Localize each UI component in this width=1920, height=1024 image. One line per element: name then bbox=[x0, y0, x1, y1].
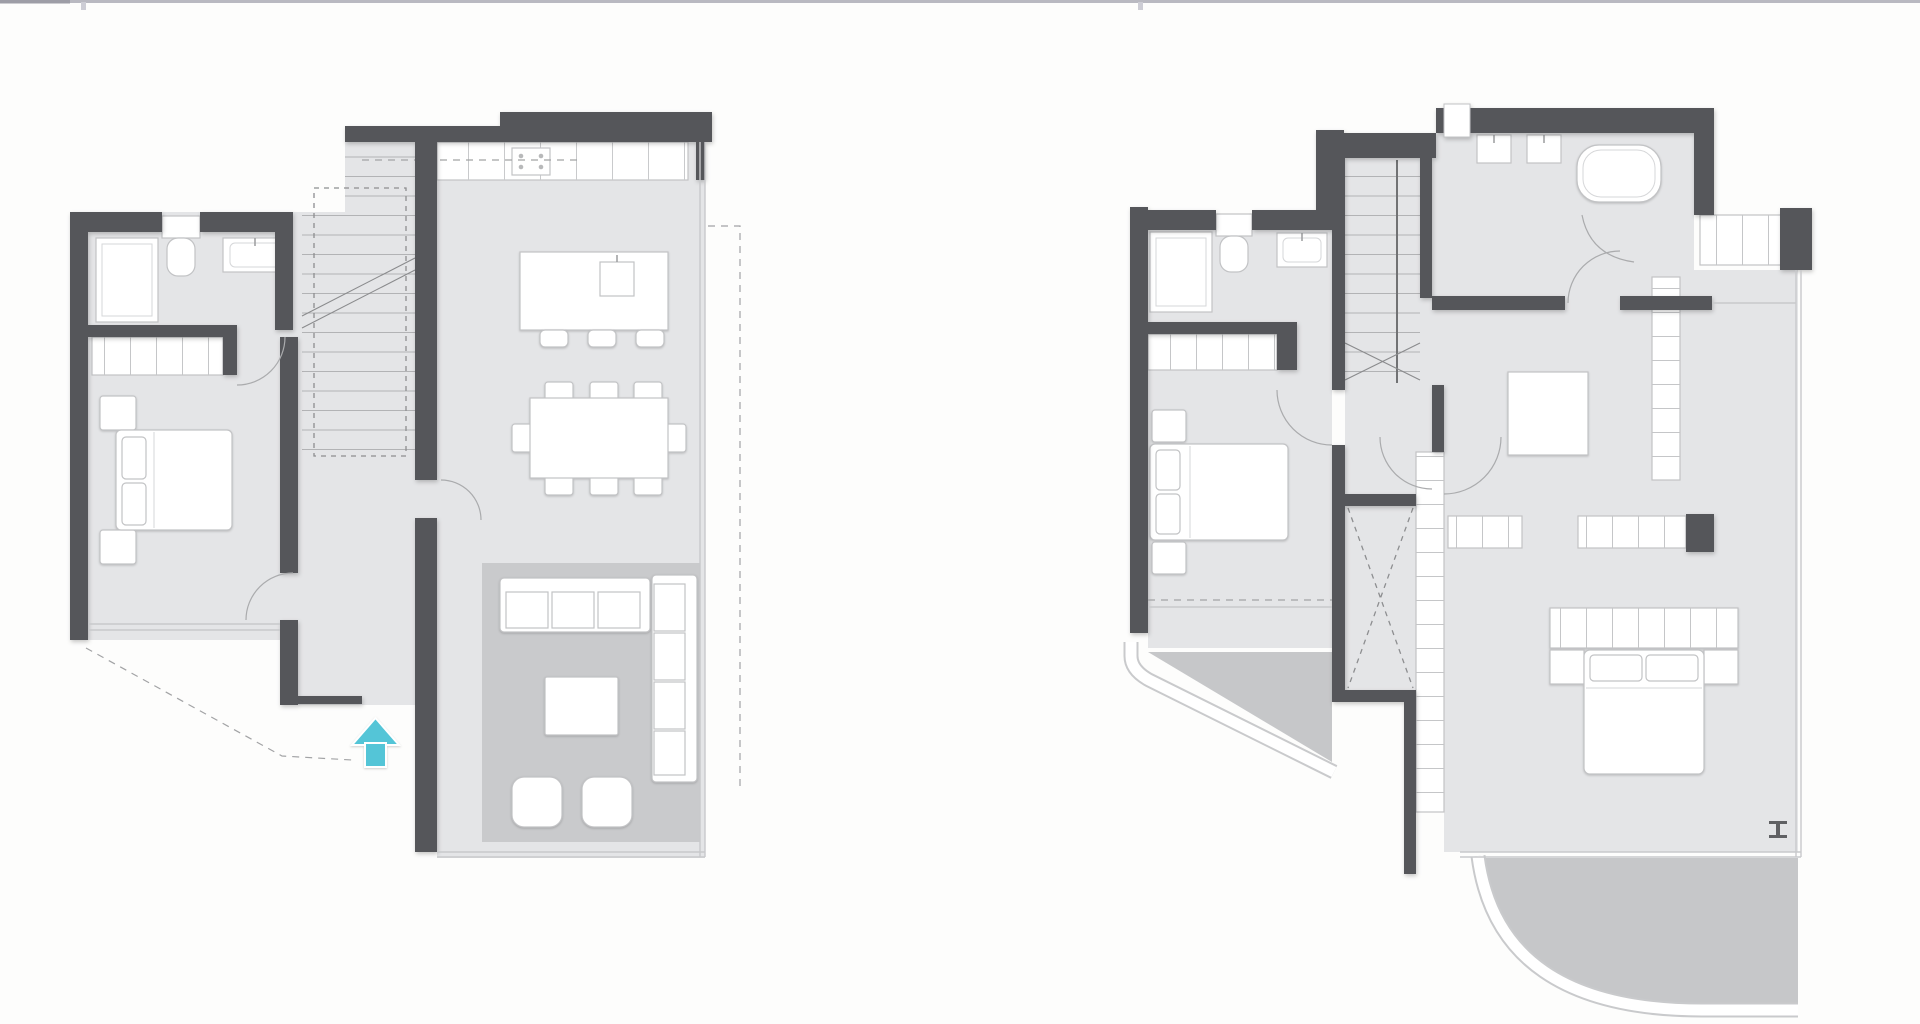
wall-segment bbox=[415, 518, 437, 852]
chaise-cushion bbox=[654, 731, 685, 775]
toilet-cistern bbox=[1216, 214, 1252, 236]
staircase bbox=[302, 150, 415, 465]
wall-segment bbox=[1686, 514, 1714, 552]
roof-overhang-dashed bbox=[708, 226, 740, 792]
nightstand bbox=[1550, 650, 1584, 684]
first-floor-plan bbox=[1130, 104, 1812, 1010]
wall-segment bbox=[1332, 133, 1345, 390]
wall-segment bbox=[1130, 210, 1216, 230]
wall-segment bbox=[1432, 385, 1444, 452]
dining-chair bbox=[666, 424, 686, 452]
top-border-line bbox=[0, 0, 1920, 3]
dining-chair bbox=[634, 476, 662, 495]
chaise-cushion bbox=[654, 682, 685, 729]
sofa-cushion bbox=[598, 592, 640, 628]
chaise-cushion bbox=[654, 633, 685, 680]
nightstand bbox=[100, 396, 136, 430]
wall-segment bbox=[88, 325, 237, 337]
wall-segment bbox=[280, 337, 298, 573]
page-top-border bbox=[0, 0, 1920, 10]
stair-treads-upper bbox=[345, 150, 415, 212]
headboard-divisions bbox=[1550, 608, 1738, 648]
toilet-bowl bbox=[1220, 236, 1248, 272]
wardrobe-divisions bbox=[92, 337, 223, 375]
pillow bbox=[1156, 450, 1180, 490]
wall-segment bbox=[1277, 322, 1297, 370]
stair-treads bbox=[1345, 158, 1420, 385]
coffee-table bbox=[545, 677, 618, 735]
wall-segment bbox=[1404, 702, 1416, 874]
wall-segment bbox=[1432, 296, 1565, 310]
floor-plan-sheet bbox=[0, 0, 1920, 1024]
pouf bbox=[512, 777, 562, 827]
toilet-bowl bbox=[167, 238, 195, 276]
top-border-tick bbox=[1138, 2, 1143, 10]
top-border-tick bbox=[81, 2, 86, 10]
wall-niche bbox=[1444, 104, 1470, 137]
wall-segment bbox=[1694, 108, 1714, 215]
wall-segment bbox=[1148, 322, 1277, 334]
closet-divisions bbox=[1448, 516, 1522, 548]
kitchen-counter-divisions bbox=[437, 142, 688, 180]
terrace-small bbox=[1148, 652, 1332, 762]
floor-plans-drawing bbox=[0, 0, 1920, 1024]
nightstand bbox=[1152, 542, 1186, 574]
sofa-cushion bbox=[552, 592, 594, 628]
kitchen-island bbox=[520, 252, 668, 330]
void-floor bbox=[1345, 494, 1416, 702]
closet-divisions bbox=[1578, 516, 1686, 548]
wall-segment bbox=[70, 212, 88, 640]
nightstand bbox=[100, 530, 136, 564]
dining-chair bbox=[590, 476, 618, 495]
dining-area bbox=[512, 382, 686, 495]
wall-segment bbox=[70, 212, 162, 232]
wall-segment bbox=[275, 232, 293, 330]
wall-segment bbox=[280, 620, 298, 705]
island-sink bbox=[600, 262, 634, 296]
ground-floor-plan bbox=[70, 112, 740, 858]
cooktop bbox=[512, 148, 550, 175]
dining-table bbox=[530, 398, 668, 478]
dining-chair bbox=[512, 424, 532, 452]
wall-segment bbox=[1332, 445, 1345, 702]
wall-segment bbox=[1345, 690, 1416, 702]
closet-divisions bbox=[1700, 215, 1782, 265]
wall-segment bbox=[1130, 207, 1148, 633]
dining-chair bbox=[545, 476, 573, 495]
top-border-accent bbox=[0, 0, 70, 4]
wall-segment bbox=[1436, 108, 1712, 133]
wall-segment bbox=[1345, 494, 1416, 506]
sofa-cushion bbox=[506, 592, 548, 628]
living-area bbox=[482, 563, 700, 842]
stair-treads bbox=[302, 212, 415, 465]
side-table bbox=[1508, 372, 1588, 455]
wall-segment bbox=[1252, 210, 1316, 230]
wardrobe-end-wall bbox=[223, 337, 237, 375]
shower bbox=[96, 238, 158, 322]
wall-segment bbox=[500, 112, 712, 142]
wall-segment bbox=[1620, 296, 1712, 310]
pillow bbox=[122, 437, 146, 479]
bedroom2 bbox=[1148, 334, 1288, 574]
wall-segment bbox=[1780, 208, 1812, 270]
wall-segment bbox=[298, 696, 362, 704]
bar-stools bbox=[540, 330, 664, 347]
terrace-large bbox=[1478, 858, 1798, 1004]
wall-segment bbox=[1420, 133, 1432, 298]
staircase-upper bbox=[1345, 158, 1420, 385]
toilet-cistern bbox=[162, 216, 200, 238]
wardrobe-divisions bbox=[1148, 334, 1277, 370]
nightstand bbox=[1152, 410, 1186, 442]
pillow bbox=[1646, 655, 1698, 681]
wall-segment bbox=[415, 126, 437, 480]
pillow bbox=[1590, 655, 1642, 681]
pillow bbox=[1156, 494, 1180, 534]
closet-divisions bbox=[1416, 452, 1444, 812]
wall-segment bbox=[200, 212, 293, 232]
shower bbox=[1150, 232, 1212, 312]
pillow bbox=[122, 483, 146, 525]
entrance-arrow-icon bbox=[352, 718, 399, 767]
nightstand bbox=[1704, 650, 1738, 684]
pouf bbox=[582, 777, 632, 827]
chaise-cushion bbox=[654, 584, 685, 631]
